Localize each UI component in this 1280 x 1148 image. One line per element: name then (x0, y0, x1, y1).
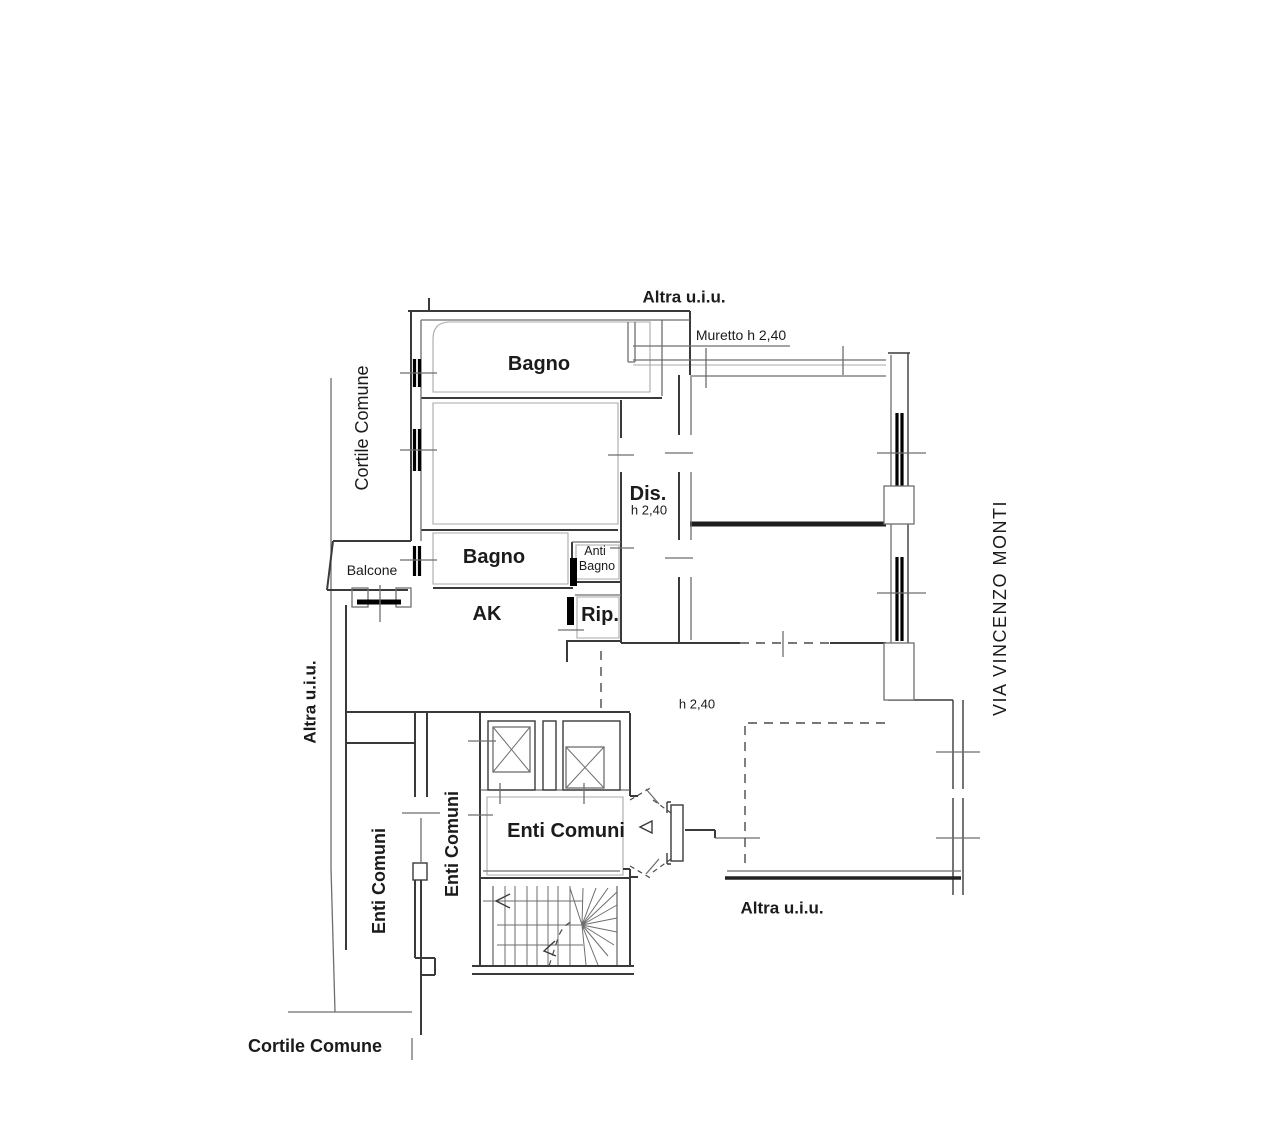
entry-door-panel (671, 805, 683, 861)
label-bagno-top: Bagno (508, 354, 570, 374)
wall-pier-lower (884, 643, 914, 700)
label-terrace-height: h 2,40 (679, 698, 715, 711)
rip-door-bar (567, 597, 574, 625)
label-cortile-comune-left: Cortile Comune (353, 365, 371, 490)
interior-walls (352, 320, 891, 862)
label-anti-bagno-line2: Bagno (579, 560, 615, 573)
label-enti-comuni-hall: Enti Comuni (507, 821, 625, 841)
terrace-dashed (601, 643, 886, 868)
elevator-1-shaft (488, 721, 535, 790)
label-cortile-comune-bottom: Cortile Comune (248, 1037, 382, 1055)
anti-bagno-door-bar (570, 558, 577, 586)
label-via-vincenzo-monti: VIA VINCENZO MONTI (991, 500, 1009, 716)
stairs-arrow-down (544, 941, 556, 956)
street-window-mullion (951, 789, 965, 798)
wall-pillar (413, 863, 427, 880)
label-dis-height: h 2,40 (631, 504, 667, 517)
label-bagno-middle: Bagno (463, 547, 525, 567)
entry-direction-triangle (640, 821, 652, 833)
floor-plan-drawing (0, 0, 1280, 1148)
exterior-walls (327, 298, 963, 1035)
elevator-2-shaft (563, 721, 620, 790)
elevator-1-x (493, 727, 530, 772)
label-ak: AK (473, 604, 502, 624)
label-altra-uiu-left: Altra u.i.u. (302, 660, 319, 743)
label-balcone: Balcone (347, 563, 398, 577)
entry-door (630, 787, 760, 879)
label-altra-uiu-bottom: Altra u.i.u. (740, 900, 823, 917)
elevator-separator (543, 721, 556, 790)
label-muretto: Muretto h 2,40 (696, 328, 786, 342)
elevator-2-x (566, 747, 604, 788)
label-altra-uiu-top: Altra u.i.u. (642, 289, 725, 306)
room-outlines (433, 322, 886, 875)
label-enti-comuni-left: Enti Comuni (370, 828, 388, 934)
windows (357, 359, 965, 798)
floor-plan-page: Altra u.i.u. Muretto h 2,40 Bagno Cortil… (0, 0, 1280, 1148)
staircase (472, 877, 634, 974)
wall-pier-upper (884, 486, 914, 524)
label-anti-bagno-line1: Anti (584, 545, 606, 558)
label-dis: Dis. (630, 484, 667, 504)
label-enti-comuni-mid: Enti Comuni (443, 791, 461, 897)
label-rip: Rip. (581, 605, 619, 625)
